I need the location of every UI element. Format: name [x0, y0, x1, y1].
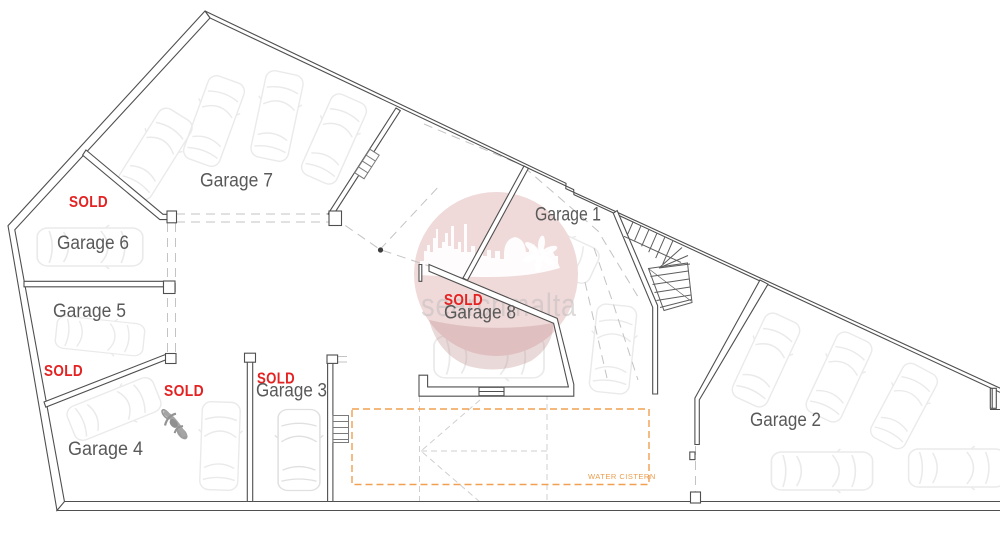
svg-text:Garage 6: Garage 6 — [57, 233, 129, 254]
svg-text:Garage 7: Garage 7 — [200, 171, 273, 192]
svg-text:Garage 4: Garage 4 — [68, 439, 143, 460]
svg-text:Garage 5: Garage 5 — [53, 301, 126, 322]
svg-text:SOLD: SOLD — [69, 194, 108, 211]
svg-text:SOLD: SOLD — [164, 383, 204, 400]
svg-text:Garage 2: Garage 2 — [750, 410, 821, 431]
svg-text:Garage 3: Garage 3 — [256, 381, 327, 402]
svg-text:Garage 1: Garage 1 — [535, 205, 601, 226]
svg-text:SOLD: SOLD — [44, 363, 83, 380]
svg-text:Garage 8: Garage 8 — [444, 303, 516, 324]
svg-text:WATER CISTERN: WATER CISTERN — [588, 472, 656, 481]
